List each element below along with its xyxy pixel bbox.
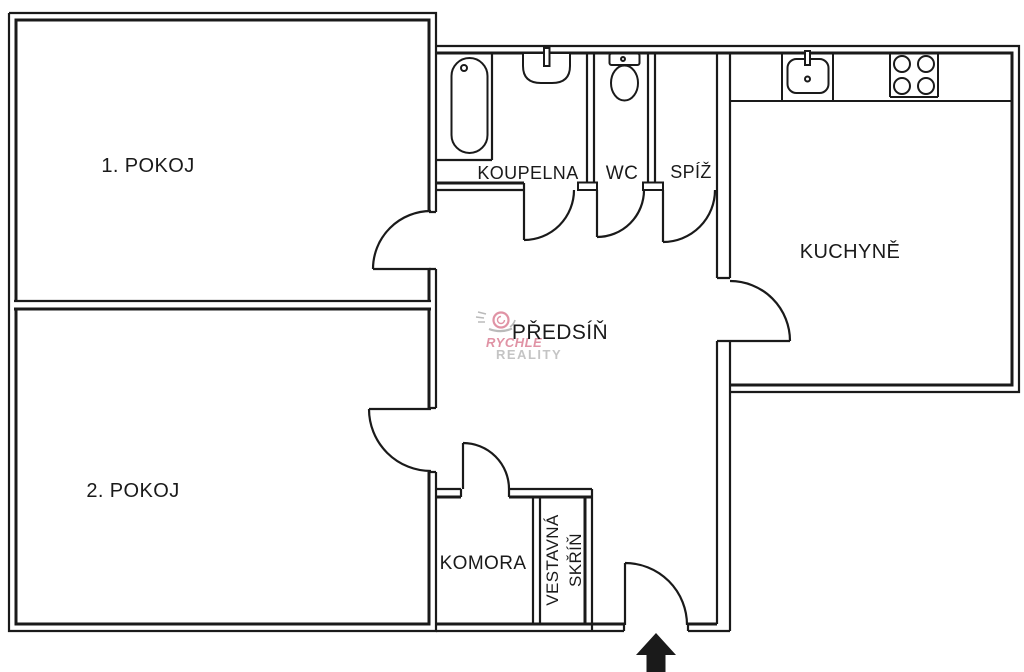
stove-burner-icon [894, 56, 910, 72]
entrance-arrow-icon [636, 633, 676, 672]
snail-shell-icon [494, 313, 509, 328]
door-kitchen [730, 281, 790, 341]
door-room2 [369, 409, 431, 471]
label-wc: WC [606, 163, 638, 184]
kitchen-sink-tap-icon [805, 51, 810, 65]
wall-tub-niche [436, 53, 492, 160]
wall-bottom-caps-entrance [624, 624, 688, 631]
label-room1: 1. POKOJ [101, 155, 194, 177]
stove-unit [890, 53, 938, 97]
floor-plan-drawing: RYCHLE REALITY 1. POKOJ 2. POKOJ KOUPELN… [0, 0, 1024, 672]
door-wc [597, 190, 644, 237]
bathtub-drain-icon [461, 65, 467, 71]
bathroom-sink-tap-icon [544, 48, 550, 66]
snail-shell-spiral-icon [498, 317, 505, 324]
door-room1 [373, 211, 431, 269]
wall-left-block-outer-top [9, 13, 436, 212]
room-labels: 1. POKOJ 2. POKOJ KOUPELNA WC SPÍŽ KUCHY… [86, 155, 900, 606]
toilet-bowl-icon [611, 66, 638, 101]
label-bathroom: KOUPELNA [477, 163, 578, 183]
bathtub-icon [452, 58, 488, 153]
label-wardrobe-line1: VESTAVNÁ [543, 514, 562, 606]
label-pantry: SPÍŽ [670, 162, 712, 182]
door-bathroom [524, 190, 574, 240]
wall-hall-kitchen [717, 53, 730, 631]
watermark-brand-line2: REALITY [496, 347, 562, 362]
wall-room1-inner [16, 20, 429, 301]
label-hallway: PŘEDSÍŇ [512, 321, 608, 344]
door-entrance [625, 563, 687, 625]
wall-storage-wardrobe-divider [533, 497, 540, 624]
label-wardrobe-line2: SKŘÍŇ [566, 533, 585, 587]
wall-wc-pantry-partition [648, 53, 655, 183]
wall-jamb-foot-2 [643, 183, 663, 191]
stove-burner-icon [918, 56, 934, 72]
door-pantry [663, 190, 715, 242]
fixtures [452, 48, 1013, 153]
wall-left-block-outer-main [9, 13, 436, 631]
label-room2: 2. POKOJ [86, 480, 179, 502]
door-storage [463, 443, 509, 489]
label-storage: KOMORA [440, 553, 527, 574]
stove-burner-icon [918, 78, 934, 94]
wall-bathroom-wc-partition [587, 53, 594, 183]
wall-jamb-foot-1 [578, 183, 597, 191]
label-kitchen: KUCHYNĚ [800, 240, 901, 263]
watermark-motion-lines [476, 312, 486, 322]
stove-burner-icon [894, 78, 910, 94]
wall-room2-inner [16, 309, 429, 624]
snail-body-icon [489, 329, 512, 332]
floor-plan: RYCHLE REALITY 1. POKOJ 2. POKOJ KOUPELN… [0, 0, 1024, 672]
kitchen-sink-drain-icon [805, 77, 810, 82]
